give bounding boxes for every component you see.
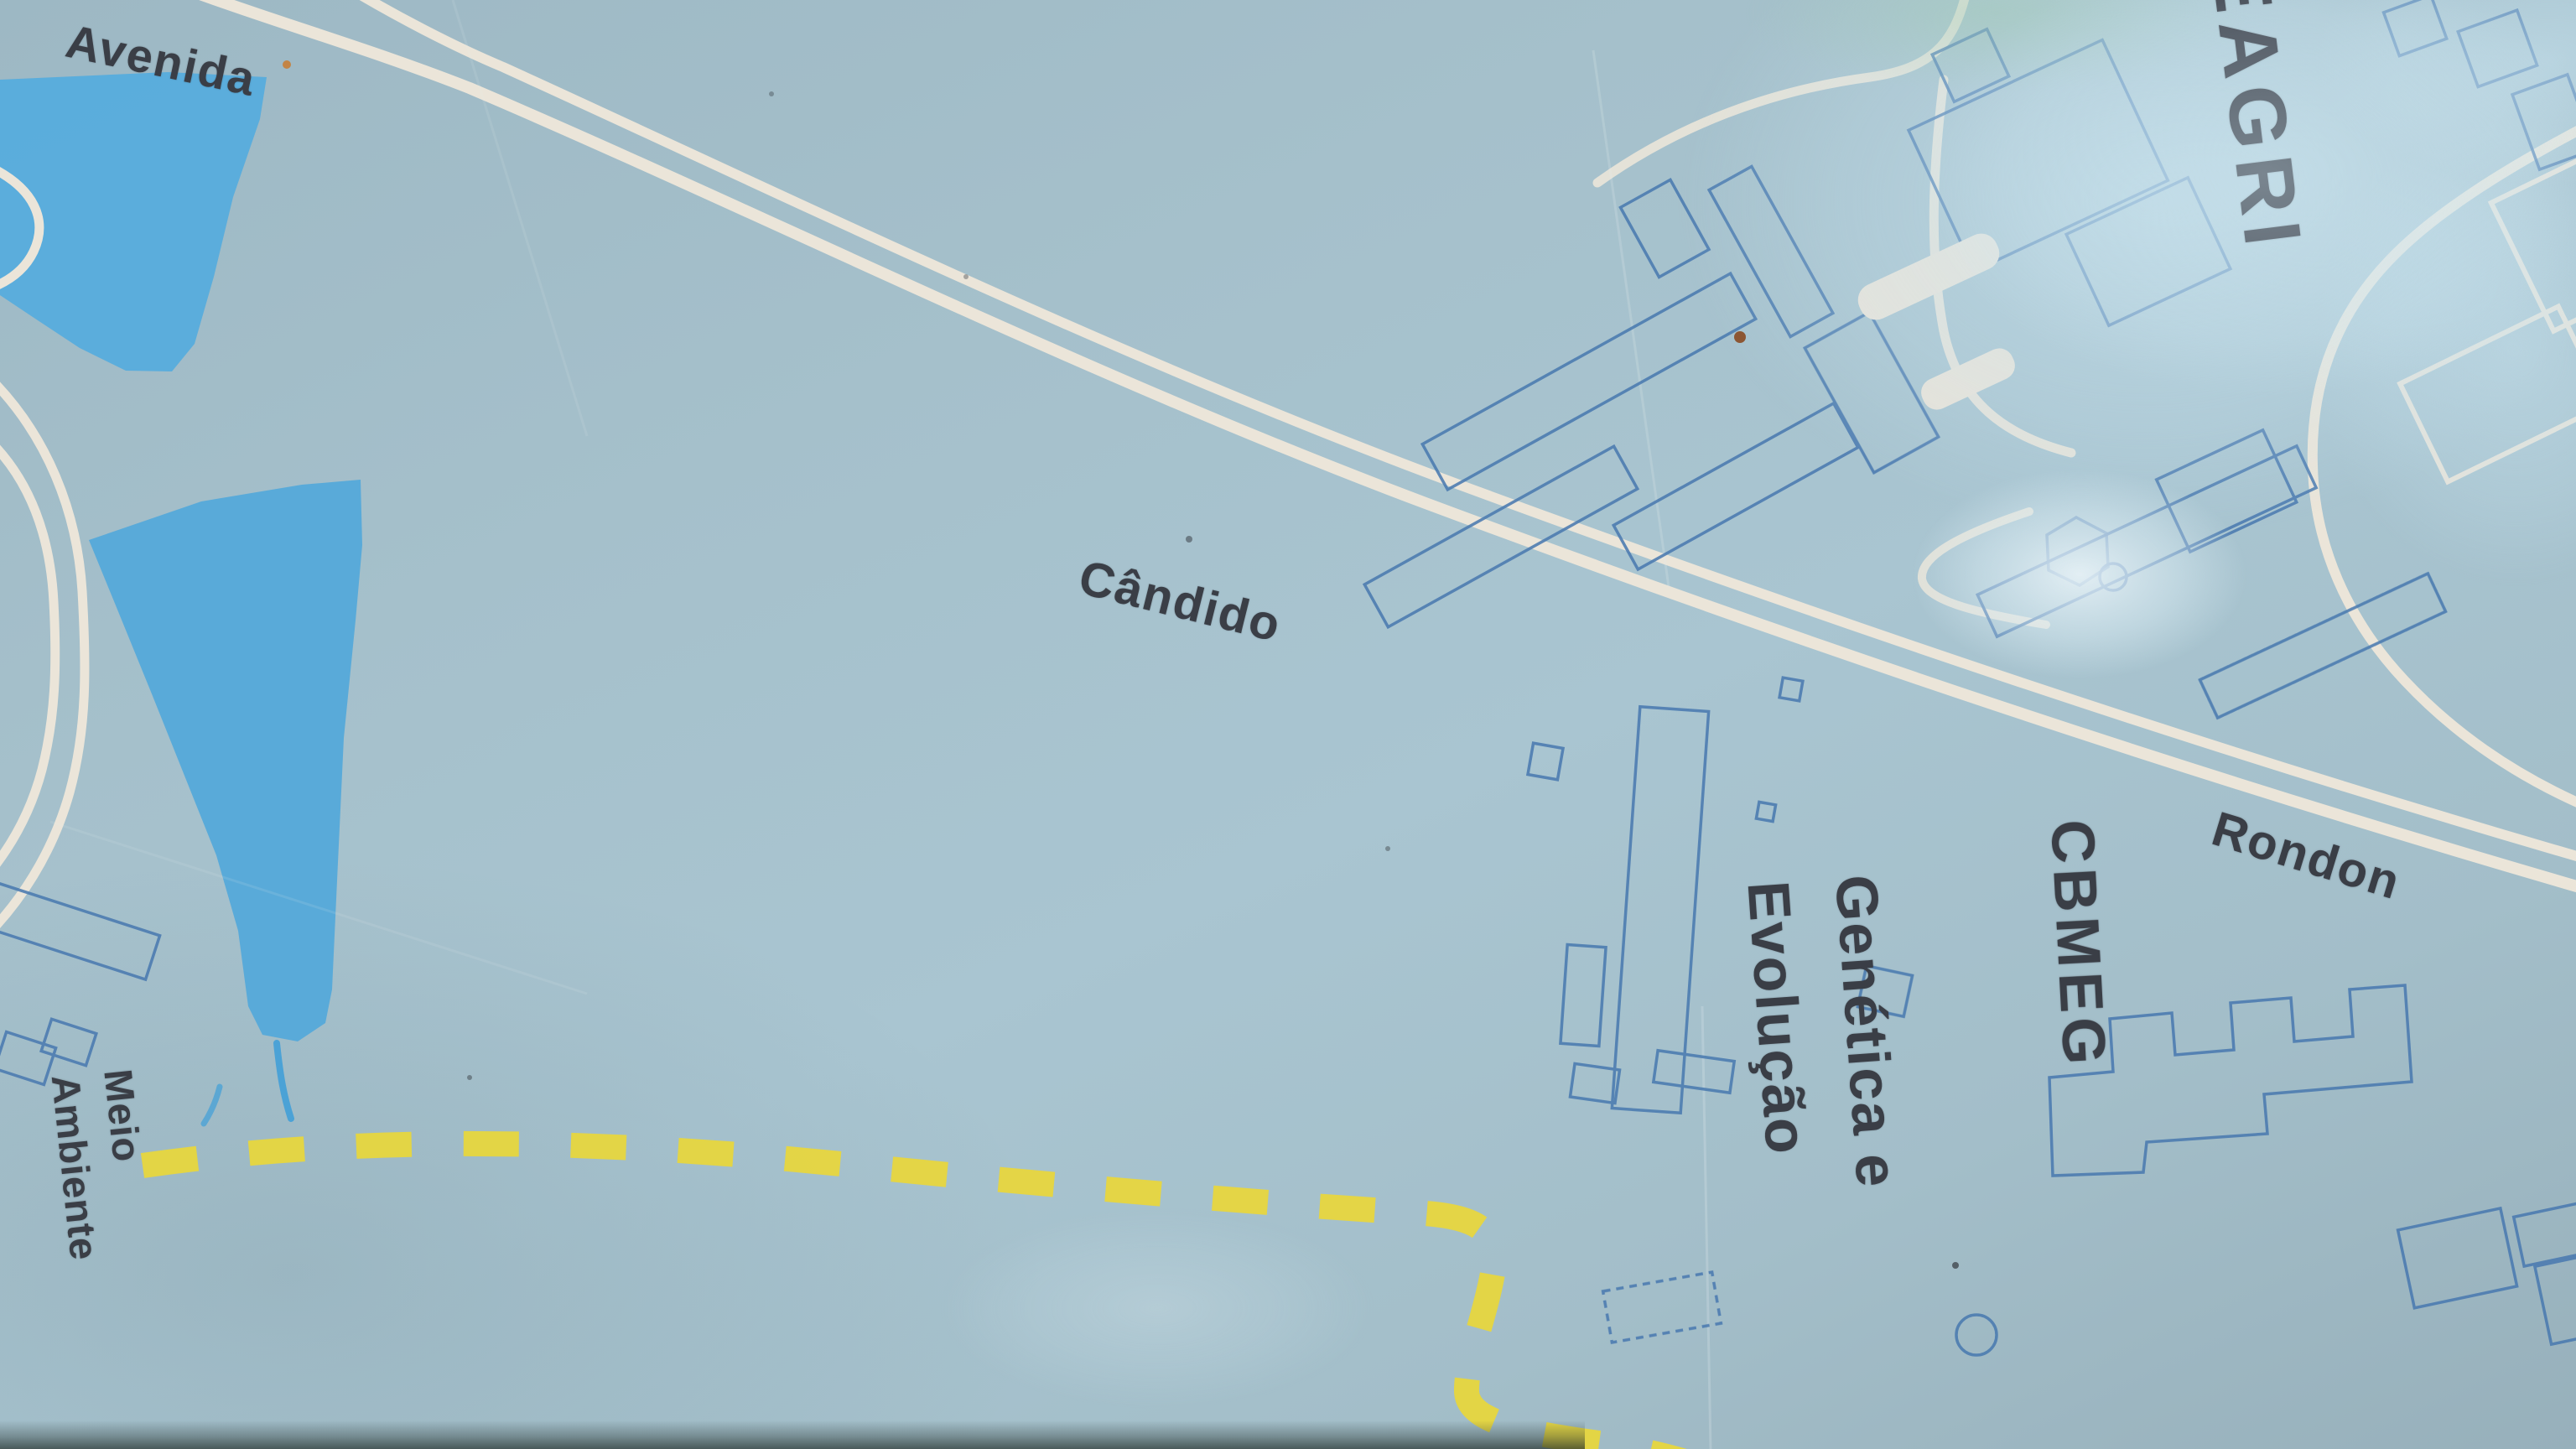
building-outline (2398, 1208, 2517, 1308)
building-outline (1756, 802, 1775, 821)
glare (939, 0, 2576, 1409)
building-outline (1561, 945, 1606, 1046)
building-outline-dashed (1603, 1272, 1722, 1343)
photo-edge-shadow (0, 1420, 1585, 1449)
building-outline (1779, 678, 1803, 701)
building-outline (2514, 1202, 2576, 1266)
building-outline (2535, 1256, 2576, 1344)
label-meio-ambiente: Meio Ambiente (39, 1067, 164, 1263)
road-left-loop-inner (0, 444, 55, 882)
map-photo: Avenida EAGRI Cândido Rondon CBMEG Genét… (0, 0, 2576, 1449)
label-cbmeg: CBMEG (2028, 818, 2126, 1072)
label-genetica-evolucao: Genética e Evolução (1724, 872, 1922, 1197)
building-outline (1654, 1051, 1734, 1093)
building-outline (1528, 743, 1563, 780)
map-artwork (0, 0, 2576, 1449)
building-circle (1956, 1315, 1997, 1355)
